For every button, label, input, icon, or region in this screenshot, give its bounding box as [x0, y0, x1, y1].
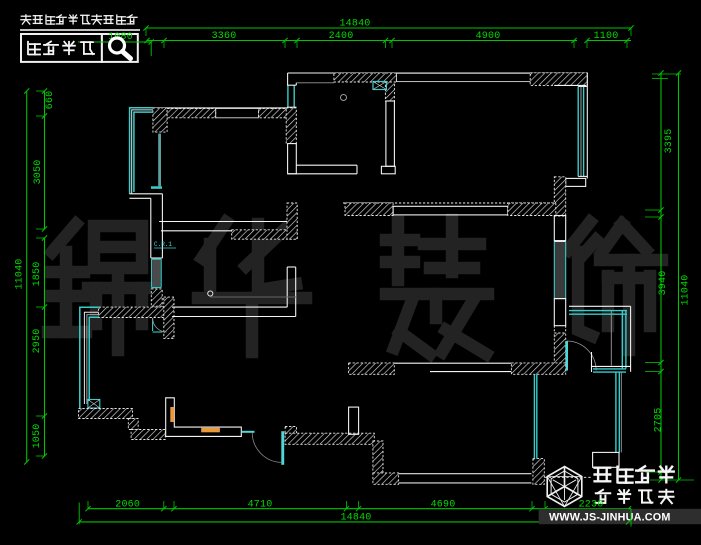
svg-text:11040: 11040: [15, 258, 26, 289]
svg-text:1850: 1850: [32, 262, 43, 287]
svg-text:4710: 4710: [248, 499, 273, 510]
svg-text:14840: 14840: [339, 19, 370, 30]
svg-text:4900: 4900: [476, 31, 501, 42]
svg-text:4690: 4690: [431, 499, 456, 510]
svg-text:2400: 2400: [329, 31, 354, 42]
svg-text:2230: 2230: [579, 500, 604, 511]
svg-text:3940: 3940: [658, 271, 669, 296]
svg-text:11040: 11040: [681, 274, 692, 305]
svg-text:2705: 2705: [654, 408, 665, 433]
svg-text:660: 660: [45, 91, 56, 110]
svg-text:C.R.1: C.R.1: [154, 241, 172, 248]
svg-text:WWW.JS-JINHUA.COM: WWW.JS-JINHUA.COM: [549, 512, 671, 524]
svg-text:3395: 3395: [664, 129, 675, 154]
svg-text:14840: 14840: [340, 512, 371, 523]
svg-text:2950: 2950: [32, 329, 43, 354]
svg-text:2060: 2060: [115, 499, 140, 510]
svg-text:1100: 1100: [594, 31, 619, 42]
svg-text:1050: 1050: [32, 424, 43, 449]
svg-text:3360: 3360: [212, 31, 237, 42]
svg-text:3050: 3050: [33, 160, 44, 185]
